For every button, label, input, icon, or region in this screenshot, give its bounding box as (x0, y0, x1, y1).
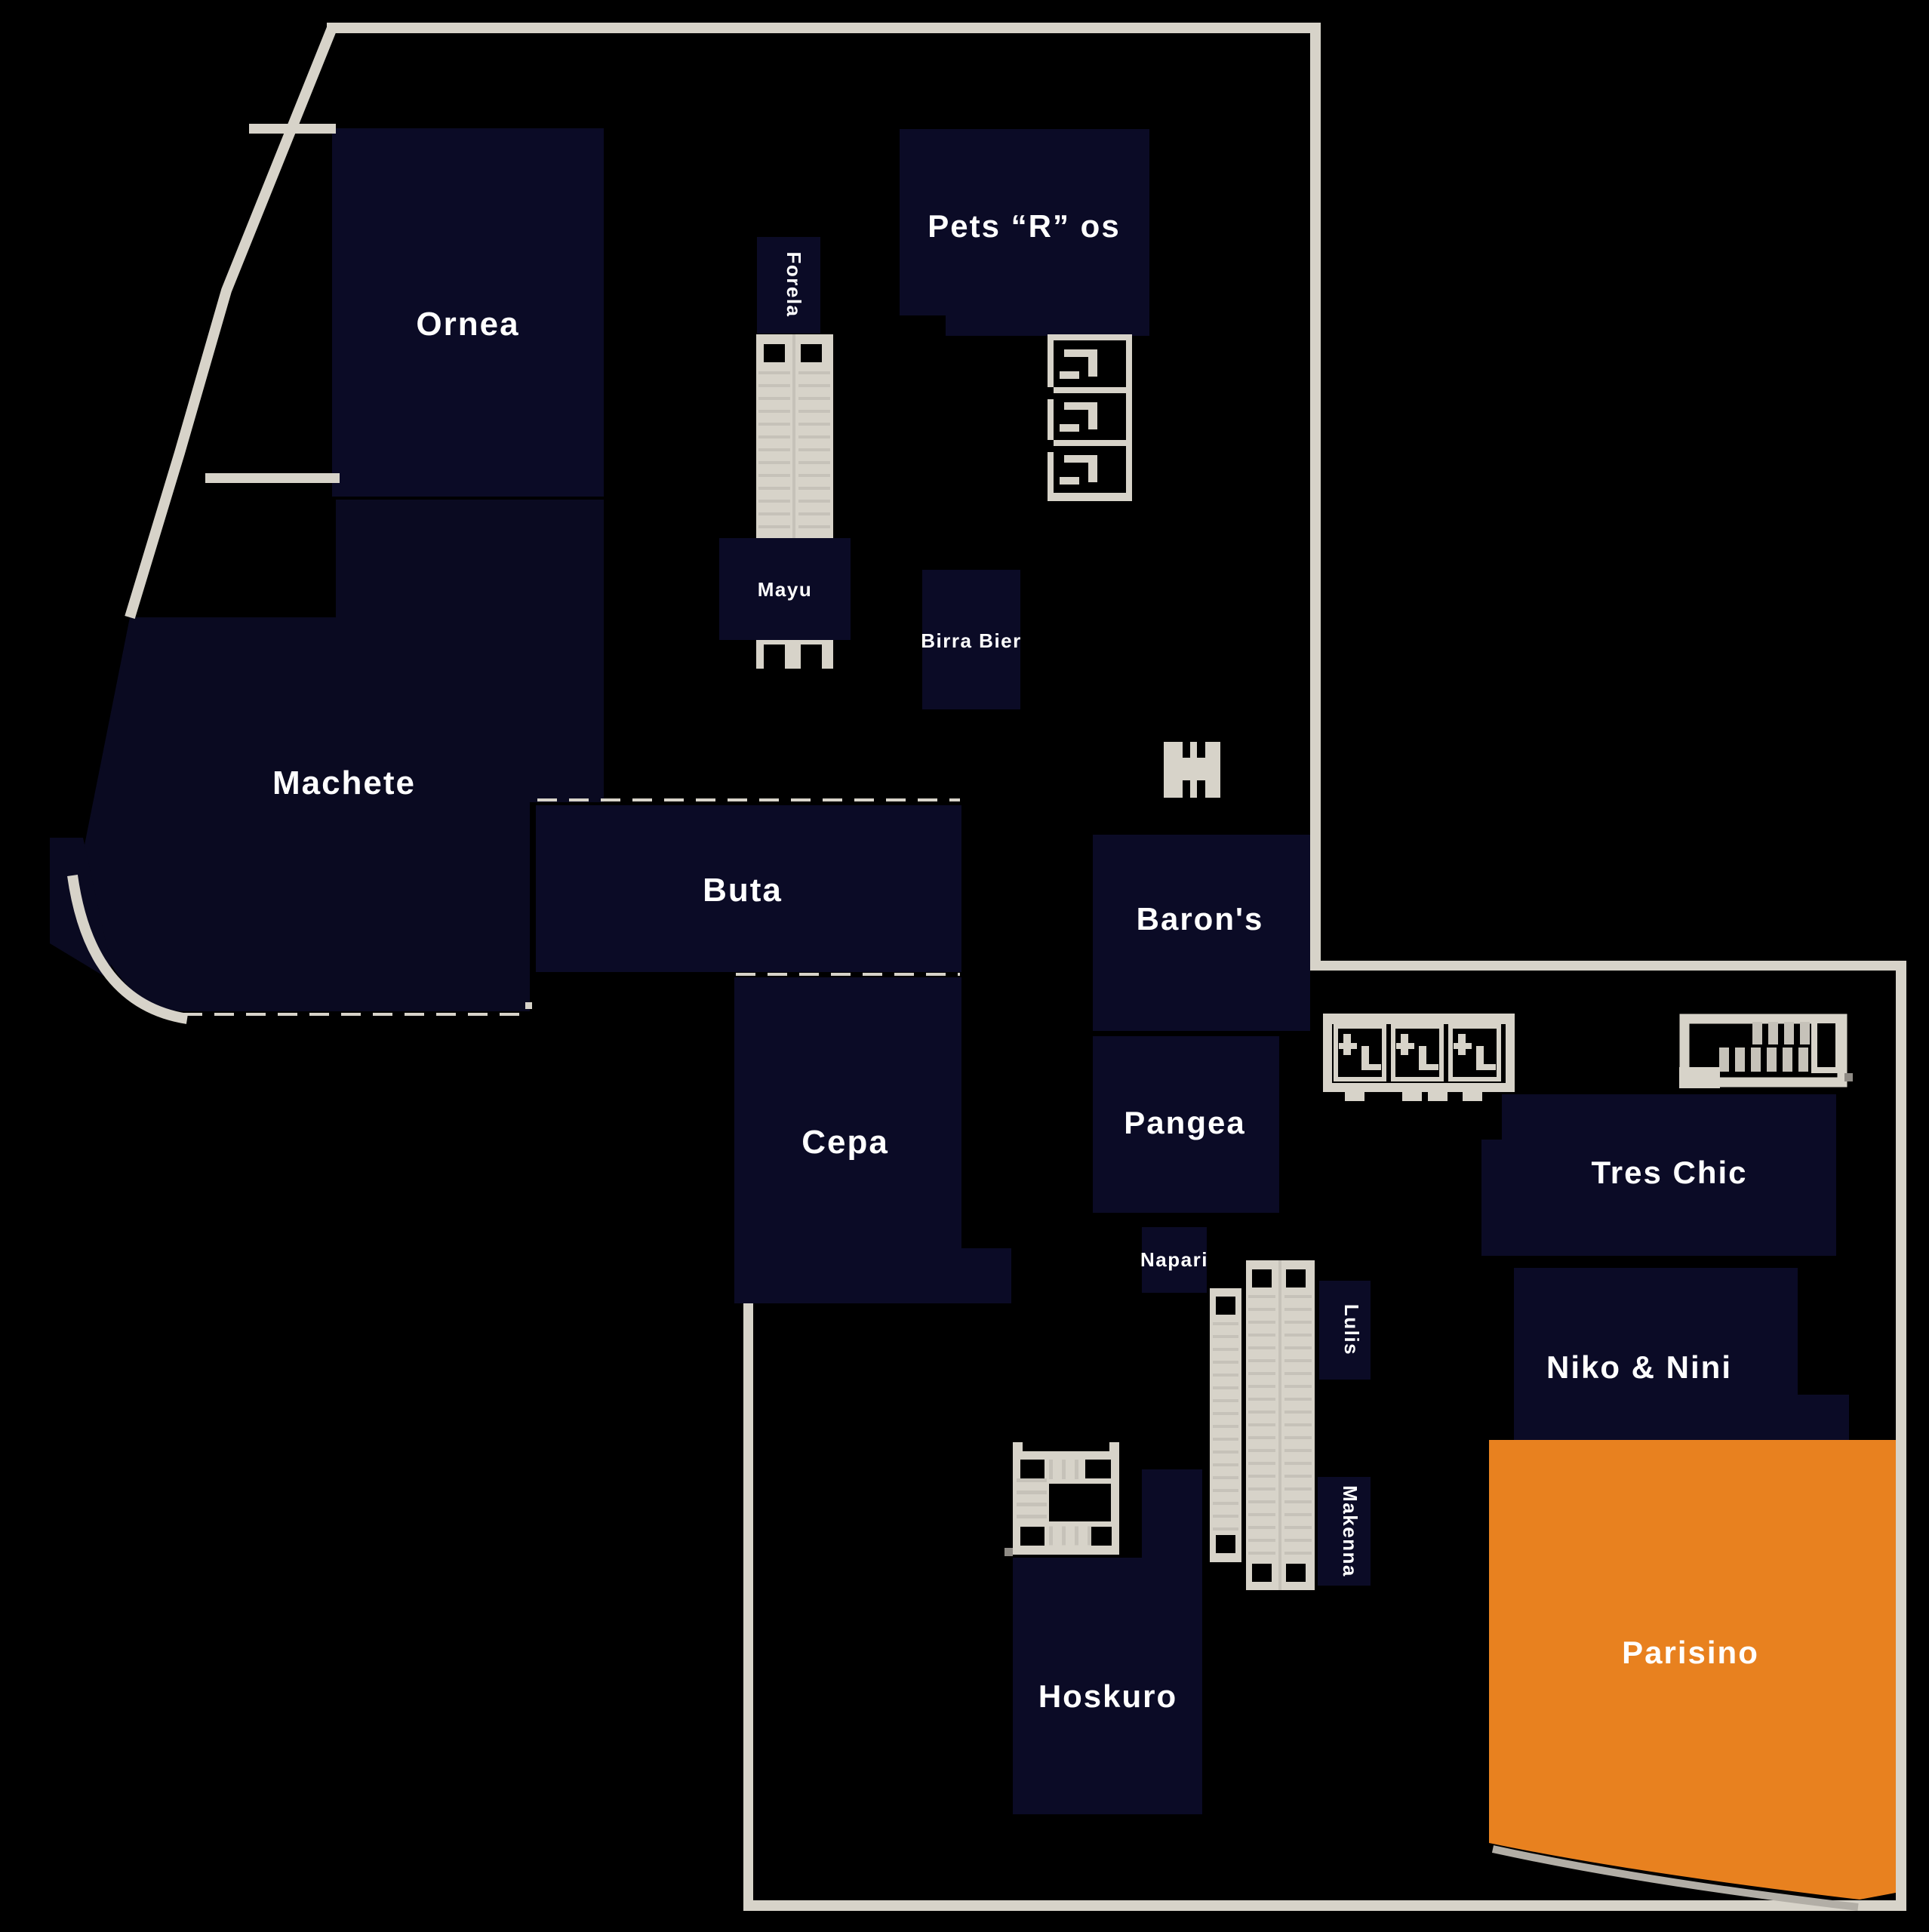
stairs-icon (1048, 334, 1132, 501)
wall-stub-upper (249, 124, 336, 134)
stairs-upper-right-icon (1679, 1019, 1853, 1088)
tres-chic-label: Tres Chic (1591, 1155, 1747, 1190)
stairwell-icon (1004, 1442, 1119, 1556)
barons-label: Baron's (1137, 901, 1264, 937)
ornea-machete-divider (336, 497, 604, 500)
cepa-label: Cepa (801, 1124, 889, 1161)
napari-label: Napari (1140, 1248, 1208, 1271)
lulis-label: Lulis (1340, 1304, 1363, 1355)
niko-nini-label: Niko & Nini (1546, 1349, 1732, 1385)
outer-wall-top (327, 23, 1320, 33)
mayu-label: Mayu (758, 578, 812, 601)
makenna-label: Makenna (1339, 1485, 1361, 1577)
pets-r-os-label: Pets “R” os (928, 208, 1120, 244)
forela-label: Forela (783, 251, 805, 317)
parisino-label: Parisino (1622, 1635, 1759, 1670)
ornea-label: Ornea (416, 306, 519, 343)
hoskuro-label: Hoskuro (1038, 1678, 1177, 1714)
pangea-label: Pangea (1124, 1105, 1245, 1140)
outer-wall-left-lower (743, 1303, 753, 1911)
escalator-long-icon (1210, 1260, 1315, 1590)
wall-dot (525, 1002, 532, 1009)
buta-label: Buta (703, 872, 783, 909)
outer-wall-diagonal (130, 28, 332, 617)
floorplan: Ornea Machete Buta Cepa Pets “R” os Fore… (0, 0, 1929, 1932)
store-machete[interactable] (78, 500, 604, 1011)
birra-bier-label: Birra Bier (921, 629, 1022, 652)
outer-wall-right-upper (1310, 23, 1321, 971)
outer-wall-bottom (743, 1900, 1906, 1911)
wall-stub-lower (205, 473, 340, 483)
machete-label: Machete (272, 764, 416, 801)
floorplan-svg: Ornea Machete Buta Cepa Pets “R” os Fore… (0, 0, 1929, 1932)
escalator-bank-icon (1323, 1014, 1515, 1101)
outer-wall-right (1896, 961, 1906, 1911)
elevator-icon (1164, 742, 1220, 798)
outer-wall-east (1310, 961, 1906, 971)
